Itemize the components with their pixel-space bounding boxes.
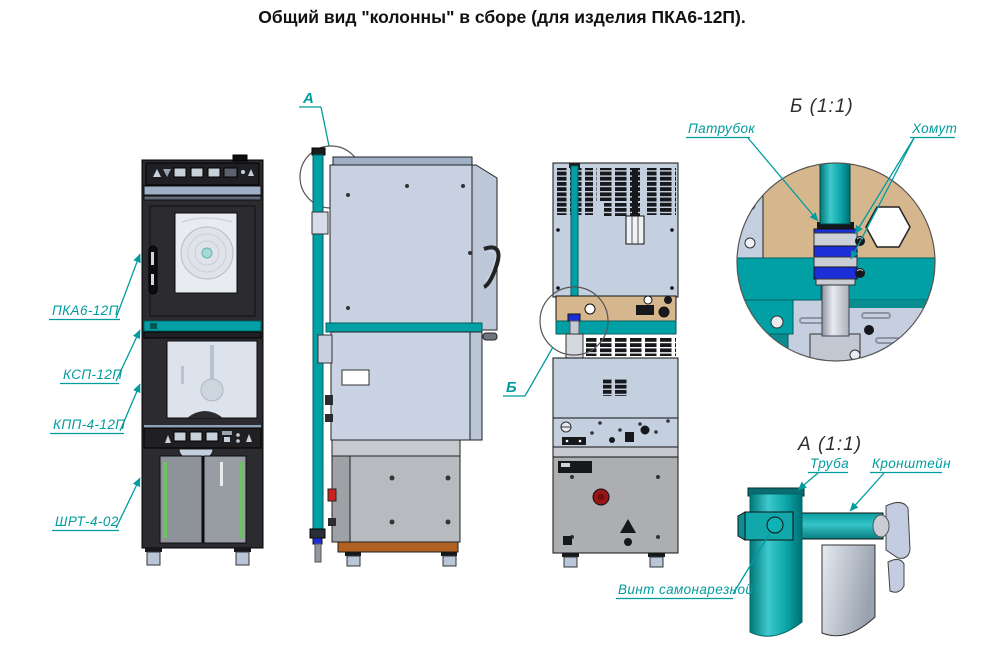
back-pipe-lower [570,321,579,334]
pipe-top-cap [312,148,325,155]
callout-label: КПП-4-12П [53,417,125,432]
back-rod-bracket [626,216,644,244]
da-screw-hole [767,517,783,533]
da-bracket-lower [888,559,904,592]
callout-pka6-12p: ПКА6-12П [49,254,140,320]
cabinet-door-right [204,456,246,543]
back-view: Б [503,163,678,567]
side-teal-stripe [326,323,482,332]
front-bottom-cabinet [160,449,246,543]
door-green-strip-right [240,462,244,538]
callout-label: ПКА6-12П [52,303,119,318]
db-clamp-stack [814,222,865,285]
side-middle-section [318,332,497,440]
assembly-drawing: Общий вид "колонны" в сборе (для изделия… [0,0,1000,669]
back-bottom-section [553,447,678,567]
callout-leader [120,384,140,431]
detail-b-title: Б (1:1) [790,96,854,117]
side-label-plate [342,370,369,385]
callout-leader [798,473,818,490]
front-control-panel-top [146,163,259,185]
side-top-section [312,157,498,330]
callout-leader [116,254,140,318]
db-teal-left [737,258,821,300]
db-teal-right [849,258,955,300]
detail-b: Б (1:1) [686,96,957,390]
pipe-bracket-mid [318,335,332,363]
front-view [142,155,263,565]
marker-leader [525,347,553,396]
back-teal-pipe [571,166,578,316]
db-teal-pipe [820,148,850,224]
marker-label: А [302,90,314,107]
db-teal-step [745,300,793,334]
front-middle-window [167,341,257,418]
db-top-sliver [763,143,821,155]
callout-truba: Труба [798,456,849,490]
callout-leader [850,473,884,511]
db-teal-right-lower [849,300,955,308]
da-arm [793,513,883,539]
db-teal-foot [742,334,788,374]
side-knob [483,333,497,340]
detail-a-drawing [738,488,910,636]
callout-ksp-12p: КСП-12П [60,330,140,384]
front-dark-strip [144,196,261,200]
door-handle-mark [220,462,223,486]
callout-leader [116,478,140,528]
front-view-callouts: ПКА6-12П КСП-12П КПП-4-12П ШРТ-4-02 [49,254,140,531]
side-view: А [299,90,498,566]
callout-label: ШРТ-4-02 [55,514,119,529]
side-bottom-section [328,440,460,566]
da-bracket-upper [886,502,910,558]
db-gray-pipe [822,284,849,336]
callout-shrt-4-02: ШРТ-4-02 [52,478,140,531]
front-top-tab [233,155,247,161]
front-teal-stripe [144,321,261,331]
pipe-fitting [310,529,325,538]
front-control-panel-bottom [144,425,261,448]
front-feet [145,547,251,565]
marker-label: Б [506,379,517,396]
back-vents-lower [586,337,676,356]
side-red-switch [328,489,336,501]
back-connection-panel [553,418,678,447]
pipe-fitting-blue [313,538,322,544]
front-divider [144,332,261,338]
da-arm-end [873,515,889,537]
drawing-canvas: Общий вид "колонны" в сборе (для изделия… [0,0,1000,669]
callout-label: Кронштейн [872,456,951,471]
side-brown-strip [338,542,458,552]
callout-label: Труба [810,456,849,471]
back-vent-small [603,379,630,396]
da-curved-panel [822,545,875,636]
teal-stripe-detail [150,323,157,329]
callout-label: Винт самонарезной [618,582,753,597]
marker-leader [321,107,329,146]
callout-label: Патрубок [688,121,755,136]
detail-a-title: А (1:1) [797,434,862,455]
page-title: Общий вид "колонны" в сборе (для изделия… [258,7,745,27]
front-light-strip [144,186,261,195]
callout-label: КСП-12П [63,367,122,382]
callout-kpp-4-12p: КПП-4-12П [50,384,140,434]
back-rod [632,168,638,216]
pipe-leg [315,544,321,562]
pipe-bracket-upper [312,212,328,234]
callout-label: Хомут [911,121,957,136]
callout-leader [116,330,140,381]
da-band [738,512,793,540]
door-green-strip-left [163,462,167,538]
back-middle-section [553,358,678,418]
back-pipe-clamp [568,314,580,321]
detail-b-content [737,143,955,390]
